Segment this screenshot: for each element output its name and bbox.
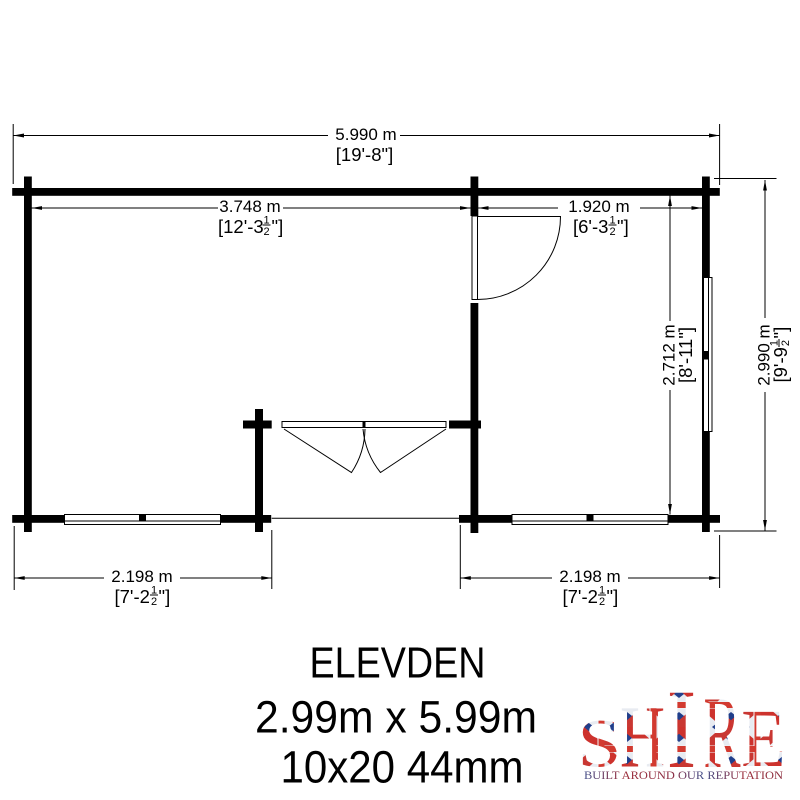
svg-text:"]: "] [617,216,629,237]
svg-text:2: 2 [263,226,269,238]
svg-text:"]: "] [159,586,171,607]
svg-text:2: 2 [599,596,605,608]
svg-text:BUILT AROUND OUR REPUTATION: BUILT AROUND OUR REPUTATION [584,770,784,782]
svg-text:[12'-3: [12'-3 [218,216,264,237]
svg-text:3.748 m: 3.748 m [219,197,280,216]
svg-text:"]: "] [607,586,619,607]
svg-text:2: 2 [151,596,157,608]
svg-text:2.99m x 5.99m: 2.99m x 5.99m [255,691,537,742]
svg-text:"]: "] [272,216,284,237]
svg-text:5.990 m: 5.990 m [335,125,396,144]
svg-text:[6'-3: [6'-3 [573,216,608,237]
svg-text:[7'-2: [7'-2 [563,586,598,607]
svg-text:2: 2 [609,226,615,238]
svg-text:1.920 m: 1.920 m [568,197,629,216]
svg-text:10x20 44mm: 10x20 44mm [281,741,524,792]
svg-text:[19'-8"]: [19'-8"] [336,144,393,165]
svg-text:2: 2 [780,340,792,346]
svg-text:"]: "] [770,327,791,339]
svg-text:2.198 m: 2.198 m [111,567,172,586]
svg-text:[8'-11"]: [8'-11"] [675,327,696,383]
svg-text:2.198 m: 2.198 m [559,567,620,586]
svg-text:[9'-9: [9'-9 [770,347,791,382]
svg-text:[7'-2: [7'-2 [115,586,150,607]
svg-text:ELEVDEN: ELEVDEN [310,640,486,688]
